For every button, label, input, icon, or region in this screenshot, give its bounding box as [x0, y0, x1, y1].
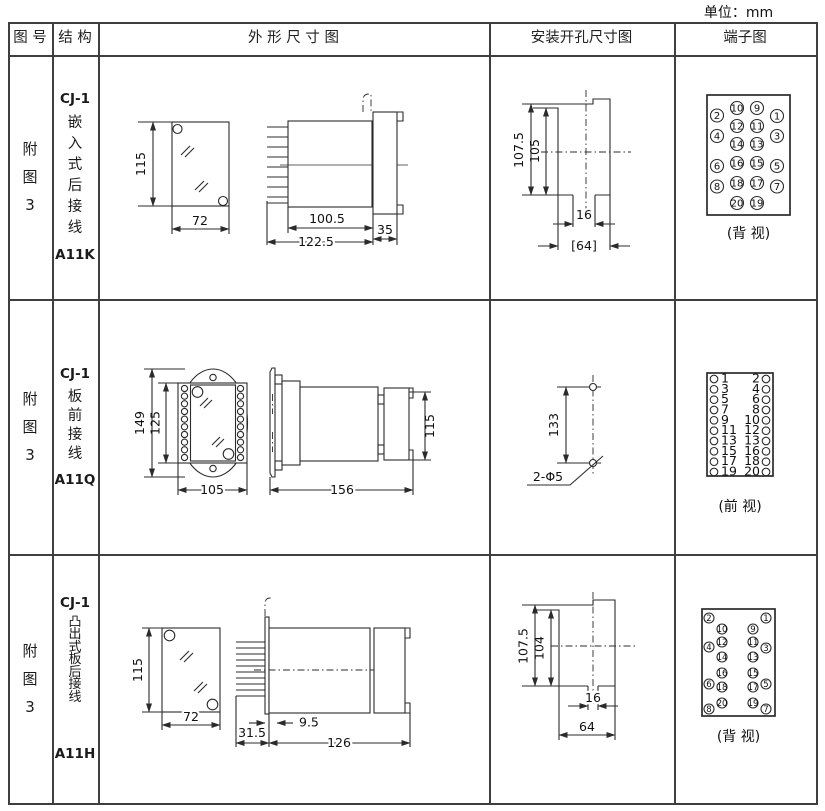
terminal-number: 15: [748, 669, 759, 679]
dim-label: 122.5: [298, 234, 334, 249]
figure-char: 附: [22, 641, 37, 661]
dim-label: 64: [579, 719, 595, 734]
header-terminal: 端子图: [674, 22, 816, 55]
header-install: 安装开孔尺寸图: [489, 22, 674, 55]
figure-no-row1: 附 图 3: [8, 55, 52, 299]
terminal-number: 2: [714, 111, 720, 122]
model-code: CJ-1: [60, 593, 90, 613]
cutout-contour: [522, 90, 631, 250]
terminal-number: 5: [763, 680, 768, 690]
dimension-labels: 133 2-Φ5: [533, 413, 563, 484]
figure-no-row3: 附 图 3: [8, 554, 52, 803]
terminal-number: 13: [748, 653, 759, 663]
dim-label: [64]: [571, 238, 597, 253]
terminal-number: 11: [751, 122, 764, 133]
terminal-number: 10: [717, 625, 728, 635]
terminal-diagram-a11k: 2 4 6 8 10 12 14 16 18 20 9 11 13 15 17 …: [674, 55, 817, 299]
terminal-number: 6: [706, 680, 711, 690]
figure-char: 3: [25, 697, 35, 717]
cutout-contour: [522, 592, 635, 740]
hole-spec-label: 2-Φ5: [533, 469, 563, 484]
install-drawing-a11q: 133 2-Φ5: [489, 299, 674, 554]
dim-label: 31.5: [238, 725, 266, 740]
terminal-number: 14: [717, 653, 728, 663]
unit-label: 单位：mm: [660, 2, 817, 22]
dim-label: 149: [132, 411, 147, 435]
dim-label: 105: [527, 139, 542, 163]
terminal-number: 15: [751, 159, 764, 170]
terminal-number: 16: [717, 669, 728, 679]
table-border-bottom: [8, 803, 818, 805]
terminal-number: 1: [763, 614, 768, 624]
model-code: CJ-1: [60, 89, 90, 109]
terminal-number: 4: [714, 132, 720, 143]
terminal-number: 11: [748, 638, 759, 648]
figure-char: 附: [22, 139, 37, 159]
terminal-number: 9: [754, 104, 760, 115]
terminal-number: 19: [748, 699, 759, 709]
dimension-labels: 107.5 104 16 64: [516, 628, 601, 734]
terminal-number: 17: [748, 683, 759, 693]
terminal-number: 18: [717, 683, 728, 693]
figure-char: 图: [22, 167, 37, 187]
header-structure: 结 构: [52, 22, 98, 55]
terminal-numbers: 2 4 6 8 10 12 14 16 18 20 9 11 13 15 17 …: [714, 104, 780, 243]
variant-code: A11K: [55, 245, 95, 265]
terminal-numbers: 2 1 10 9 12 11 4 3 14 13 16 15 6 5 18 17…: [706, 614, 768, 745]
terminal-number: 4: [706, 643, 711, 653]
terminal-number: 6: [714, 162, 720, 173]
dim-label: 16: [576, 207, 592, 222]
terminal-numbers: 1 3 5 7 9 11 13 15 17 19 2 4 6 8 10 12 1…: [718, 371, 761, 516]
terminal-number: 16: [731, 159, 744, 170]
terminal-number: 7: [763, 705, 768, 715]
terminal-number: 13: [751, 140, 764, 151]
dim-label: 126: [327, 735, 351, 750]
dim-label: 107.5: [511, 132, 526, 168]
terminal-diagram-a11q: 1 3 5 7 9 11 13 15 17 19 2 4 6 8 10 12 1…: [674, 299, 817, 554]
figure-no-row2: 附 图 3: [8, 299, 52, 554]
terminal-diagram-a11h: 2 1 10 9 12 11 4 3 14 13 16 15 6 5 18 17…: [674, 554, 817, 803]
dim-label: 35: [377, 222, 393, 237]
terminal-number: 20: [744, 464, 760, 479]
dim-label: 72: [183, 709, 199, 724]
terminal-number: 2: [706, 614, 711, 624]
outline-drawing-a11q: 149 125 105 156 115: [99, 299, 489, 554]
terminal-number: 8: [706, 705, 711, 715]
terminal-number: 3: [763, 644, 768, 654]
view-label: (背 视): [717, 729, 760, 745]
structure-row2: CJ-1 板 前 接 线 A11Q: [52, 299, 98, 554]
install-drawing-a11h: 107.5 104 16 64: [489, 554, 674, 803]
dim-label: 72: [192, 213, 208, 228]
install-drawing-a11k: 107.5 105 16 [64]: [489, 55, 674, 299]
terminal-number: 3: [774, 132, 780, 143]
terminal-number: 20: [731, 199, 744, 210]
figure-char: 3: [25, 195, 35, 215]
figure-char: 图: [22, 417, 37, 437]
side-view: [270, 368, 431, 495]
figure-char: 图: [22, 669, 37, 689]
dim-label: 115: [130, 658, 145, 682]
dim-label: 156: [330, 482, 354, 497]
outline-drawing-a11k: 115 72 100.5 122.5 35: [99, 55, 489, 299]
structure-row3: CJ-1 凸 出 式 板 后 接 线 A11H: [52, 554, 98, 803]
terminal-number: 1: [774, 112, 780, 123]
dim-label: 107.5: [516, 628, 531, 664]
terminal-number: 19: [751, 199, 764, 210]
variant-code: A11H: [55, 744, 96, 764]
dim-label: 9.5: [299, 715, 319, 730]
dim-label: 125: [148, 411, 163, 435]
terminal-number: 5: [774, 162, 780, 173]
terminal-number: 17: [751, 179, 764, 190]
terminal-number: 8: [714, 182, 720, 193]
header-figure-no: 图 号: [8, 22, 52, 55]
spec-sheet-page: 单位：mm 图 号 结 构 外 形 尺 寸 图 安装开孔尺寸图 端子图 附 图 …: [0, 0, 825, 811]
dim-label: 115: [422, 414, 437, 438]
terminal-number: 12: [731, 122, 744, 133]
figure-char: 3: [25, 445, 35, 465]
view-label: (背 视): [727, 226, 770, 242]
dim-label: 115: [133, 152, 148, 176]
variant-code: A11Q: [55, 470, 96, 490]
outline-drawing-a11h: 115 72 31.5 9.5 126: [99, 554, 489, 803]
terminal-box: [702, 609, 775, 716]
header-outline: 外 形 尺 寸 图: [98, 22, 489, 55]
front-view: [142, 628, 220, 730]
dim-label: 16: [585, 690, 601, 705]
terminal-number: 10: [731, 104, 744, 115]
terminal-number: 9: [750, 625, 755, 635]
front-view: [138, 122, 229, 234]
figure-char: 附: [22, 389, 37, 409]
dim-label: 100.5: [309, 211, 345, 226]
dim-label: 105: [200, 482, 224, 497]
terminal-number: 20: [717, 699, 728, 709]
model-code: CJ-1: [60, 364, 90, 384]
terminal-number: 18: [731, 179, 744, 190]
terminal-box: [707, 373, 773, 476]
terminal-number: 14: [731, 140, 744, 151]
structure-row1: CJ-1 嵌 入 式 后 接 线 A11K: [52, 55, 98, 299]
dimension-labels: 107.5 105 16 [64]: [511, 132, 597, 253]
dim-label: 104: [532, 636, 547, 660]
terminal-number: 12: [717, 638, 728, 648]
terminal-number: 7: [774, 182, 780, 193]
view-label: (前 视): [718, 498, 761, 515]
dim-label: 133: [546, 413, 561, 437]
terminal-number: 19: [721, 464, 737, 479]
